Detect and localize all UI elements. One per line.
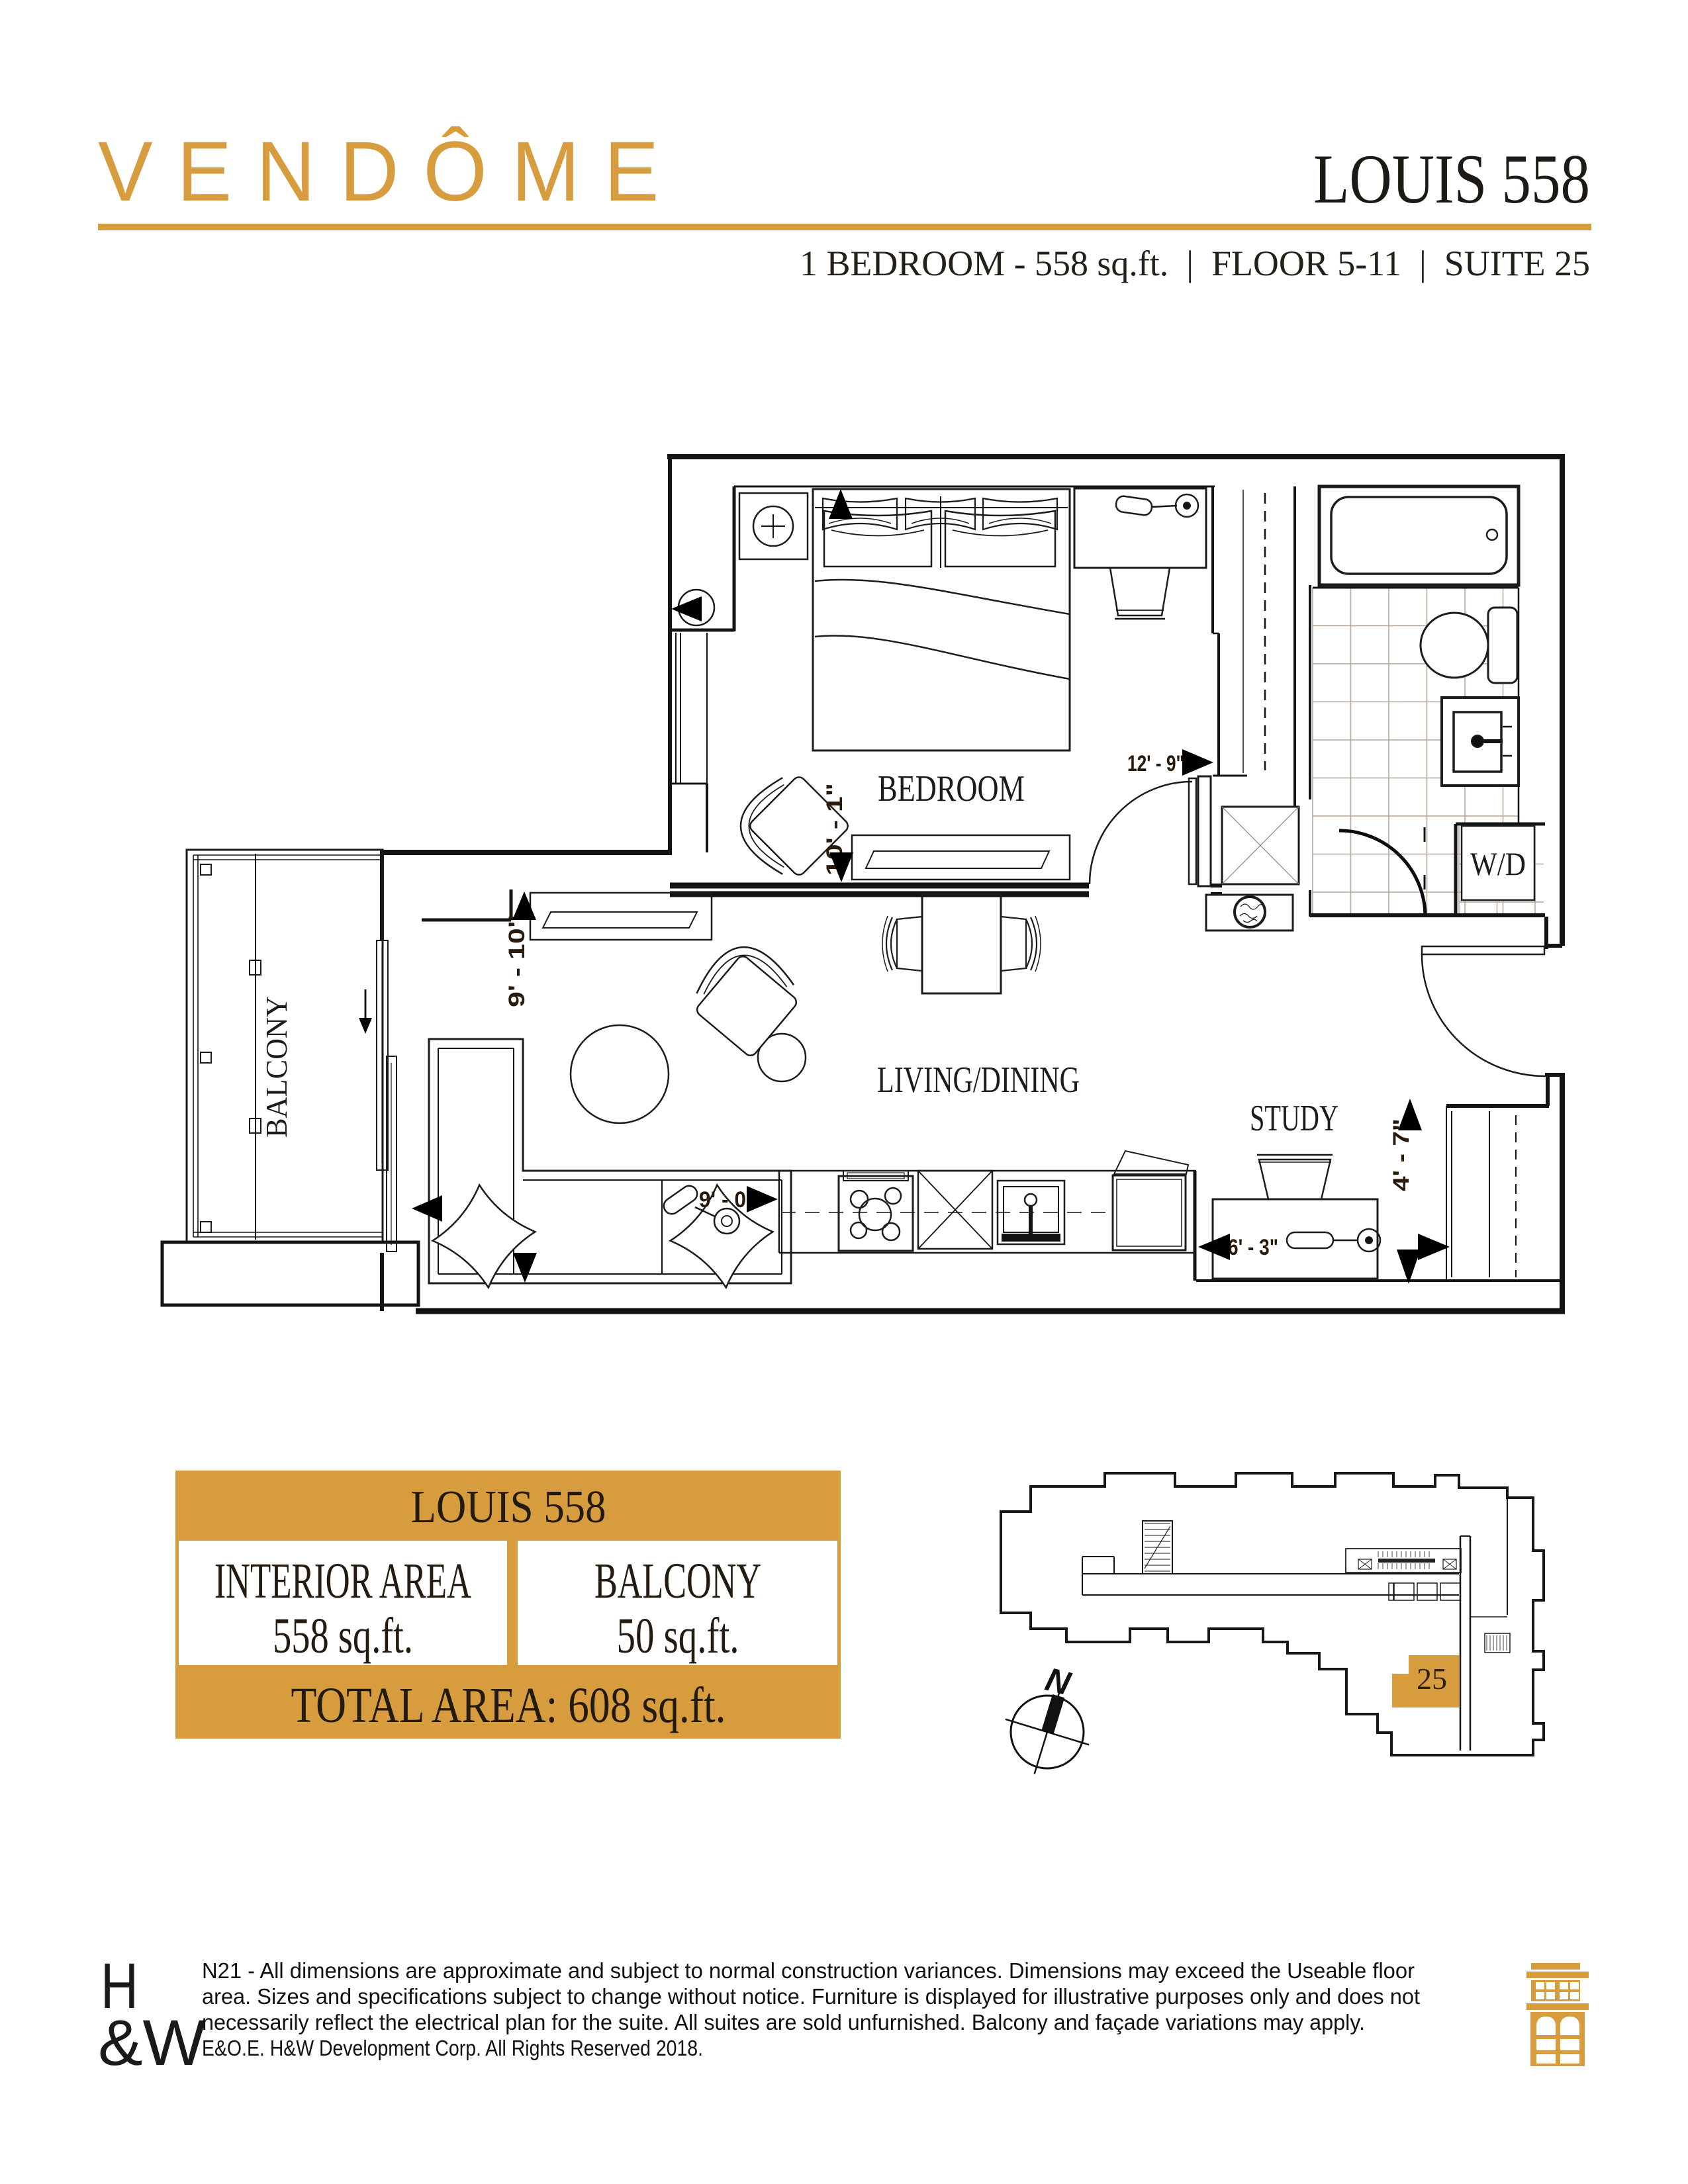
svg-text:W/D: W/D bbox=[1470, 845, 1526, 882]
svg-text:9' - 10": 9' - 10" bbox=[504, 915, 530, 1007]
svg-text:BEDROOM: BEDROOM bbox=[878, 768, 1025, 809]
svg-text:STUDY: STUDY bbox=[1250, 1098, 1338, 1139]
svg-text:25: 25 bbox=[1417, 1662, 1447, 1696]
svg-text:12' - 9": 12' - 9" bbox=[1127, 751, 1184, 776]
svg-text:LOUIS 558: LOUIS 558 bbox=[1313, 140, 1590, 218]
svg-text:6' - 3": 6' - 3" bbox=[1228, 1235, 1278, 1260]
svg-text:VENDÔME: VENDÔME bbox=[98, 124, 683, 219]
svg-text:E&O.E. H&W Development Corp.: E&O.E. H&W Development Corp. All Rights … bbox=[202, 2036, 703, 2060]
svg-text:BALCONY: BALCONY bbox=[259, 996, 293, 1138]
svg-text:558 sq.ft.: 558 sq.ft. bbox=[273, 1608, 413, 1664]
svg-text:INTERIOR AREA: INTERIOR AREA bbox=[214, 1553, 471, 1609]
svg-text:area. Sizes and specifications: area. Sizes and specifications subject t… bbox=[202, 1984, 1420, 2009]
svg-text:necessarily reflect the electr: necessarily reflect the electrical plan … bbox=[202, 2010, 1365, 2034]
svg-text:1 BEDROOM - 558 sq.ft. | FLO: 1 BEDROOM - 558 sq.ft. | FLOOR 5-11 | SU… bbox=[800, 244, 1590, 283]
svg-text:TOTAL AREA: 608 sq.ft.: TOTAL AREA: 608 sq.ft. bbox=[291, 1678, 726, 1733]
svg-text:50 sq.ft.: 50 sq.ft. bbox=[617, 1608, 739, 1664]
svg-text:&W: &W bbox=[98, 2007, 206, 2079]
svg-text:LIVING/DINING: LIVING/DINING bbox=[877, 1060, 1080, 1101]
svg-text:BALCONY: BALCONY bbox=[594, 1553, 761, 1609]
svg-text:LOUIS 558: LOUIS 558 bbox=[411, 1482, 606, 1533]
svg-text:N21 - All dimensions are appro: N21 - All dimensions are approximate and… bbox=[202, 1958, 1415, 1983]
